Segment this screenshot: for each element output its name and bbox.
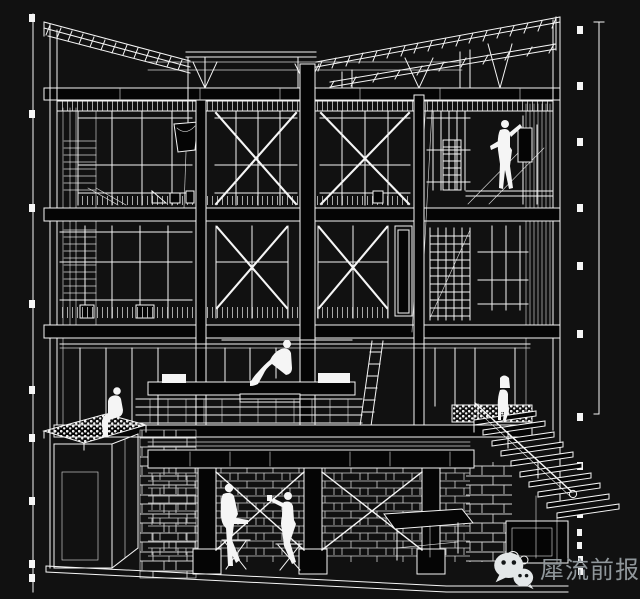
floor2-shelving-rack	[430, 228, 470, 320]
sitting-person	[250, 340, 292, 386]
building-section-drawing	[0, 0, 640, 599]
basement-girder	[148, 450, 474, 468]
watermark: 犀流前报	[490, 547, 640, 593]
floor3-shelf-rack	[443, 140, 461, 190]
hanging-bucket	[174, 57, 198, 208]
watermark-text: 犀流前报	[540, 548, 640, 592]
right-margin-scale	[577, 22, 604, 575]
main-columns	[196, 64, 424, 430]
center-platform	[136, 373, 362, 423]
floor2-windows	[60, 226, 528, 318]
floor3-windows	[78, 112, 470, 205]
storage-box	[54, 434, 138, 568]
climbing-person	[490, 120, 522, 189]
wechat-icon	[490, 548, 535, 592]
walking-person	[498, 376, 510, 421]
left-margin-scale	[29, 14, 35, 592]
architectural-section-screenshot: 犀流前报	[0, 0, 640, 599]
ladder	[360, 341, 383, 426]
